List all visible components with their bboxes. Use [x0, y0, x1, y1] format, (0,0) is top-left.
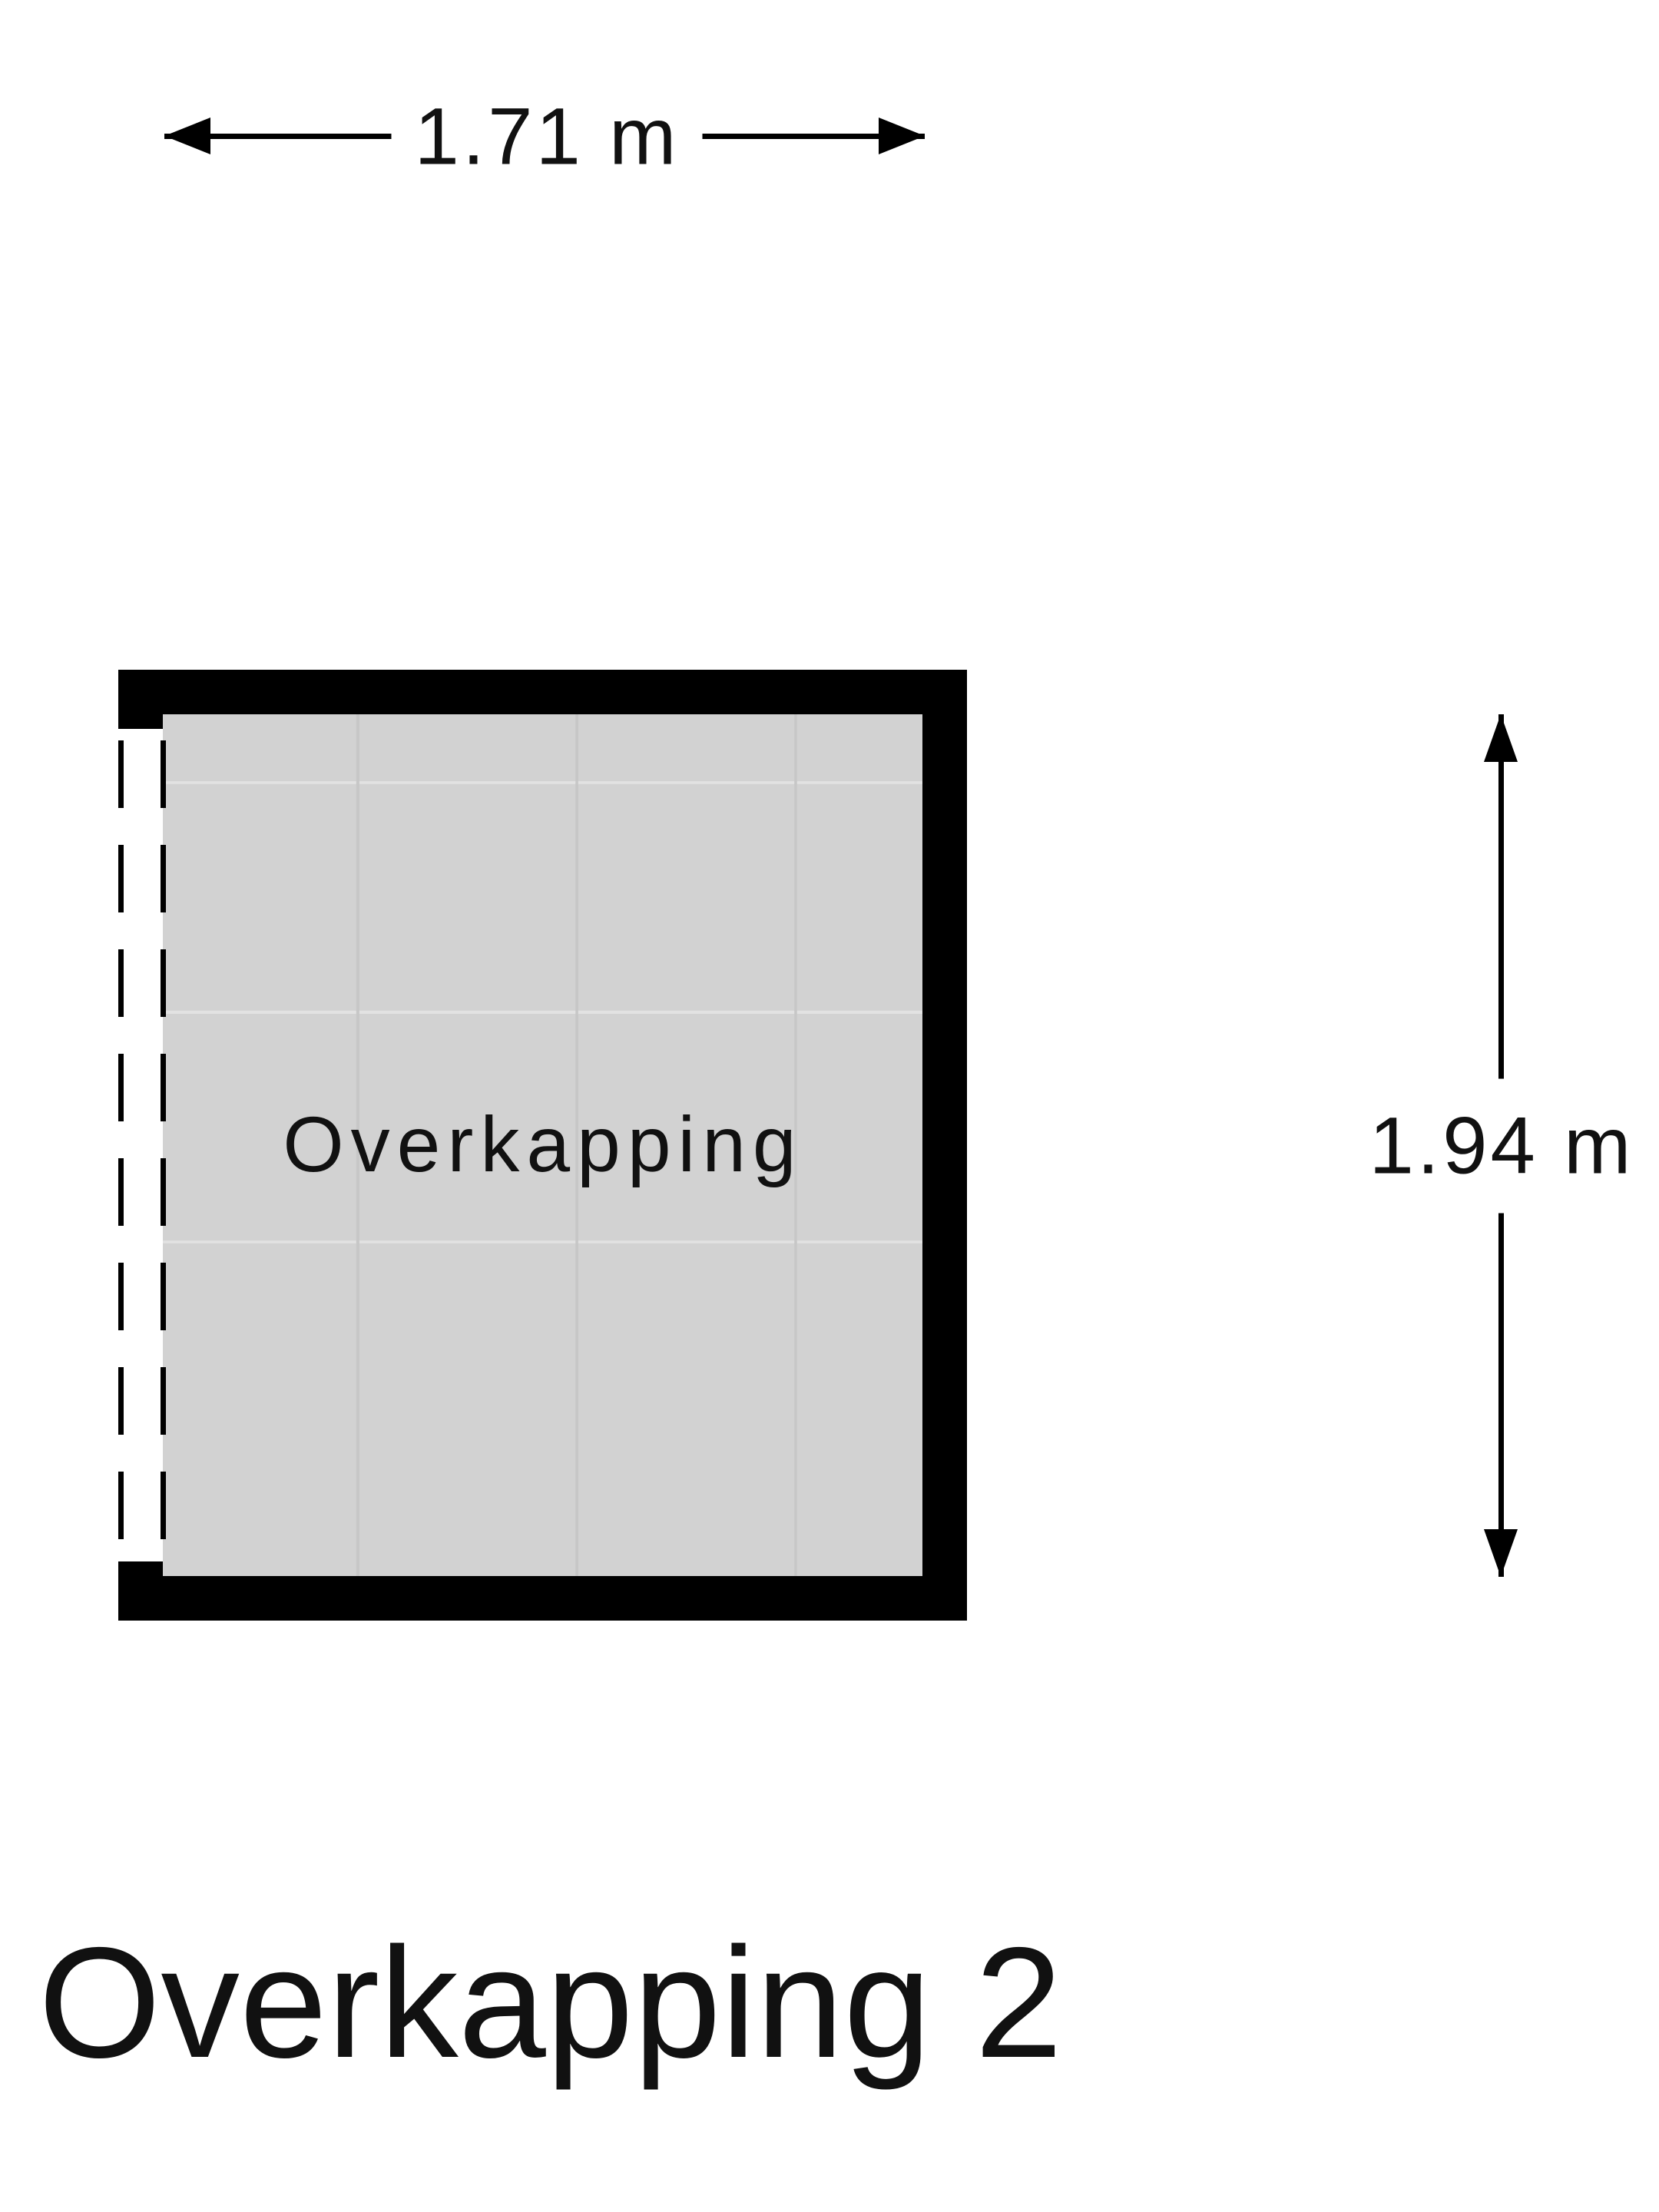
- wall-stub-bottom-left: [118, 1561, 163, 1621]
- arrow-down-icon: [1484, 1529, 1518, 1577]
- wall-right: [922, 670, 967, 1621]
- open-side-dashed-line-inner: [161, 740, 166, 1556]
- floorplan-page: 1.71 m Overkapping 1.94 m Overkapping 2: [0, 0, 1659, 2212]
- width-dimension-label: 1.71 m: [392, 91, 703, 184]
- arrow-up-icon: [1484, 714, 1518, 762]
- plan-title: Overkapping 2: [38, 1924, 1062, 2081]
- wall-bottom: [118, 1576, 967, 1621]
- arrow-left-icon: [164, 118, 210, 154]
- wall-stub-top-left: [118, 670, 163, 729]
- height-dimension-label: 1.94 m: [1357, 1079, 1647, 1214]
- wall-top: [118, 670, 967, 714]
- room-label: Overkapping: [283, 1105, 803, 1184]
- open-side-dashed-line-outer: [118, 740, 124, 1556]
- arrow-right-icon: [879, 118, 925, 154]
